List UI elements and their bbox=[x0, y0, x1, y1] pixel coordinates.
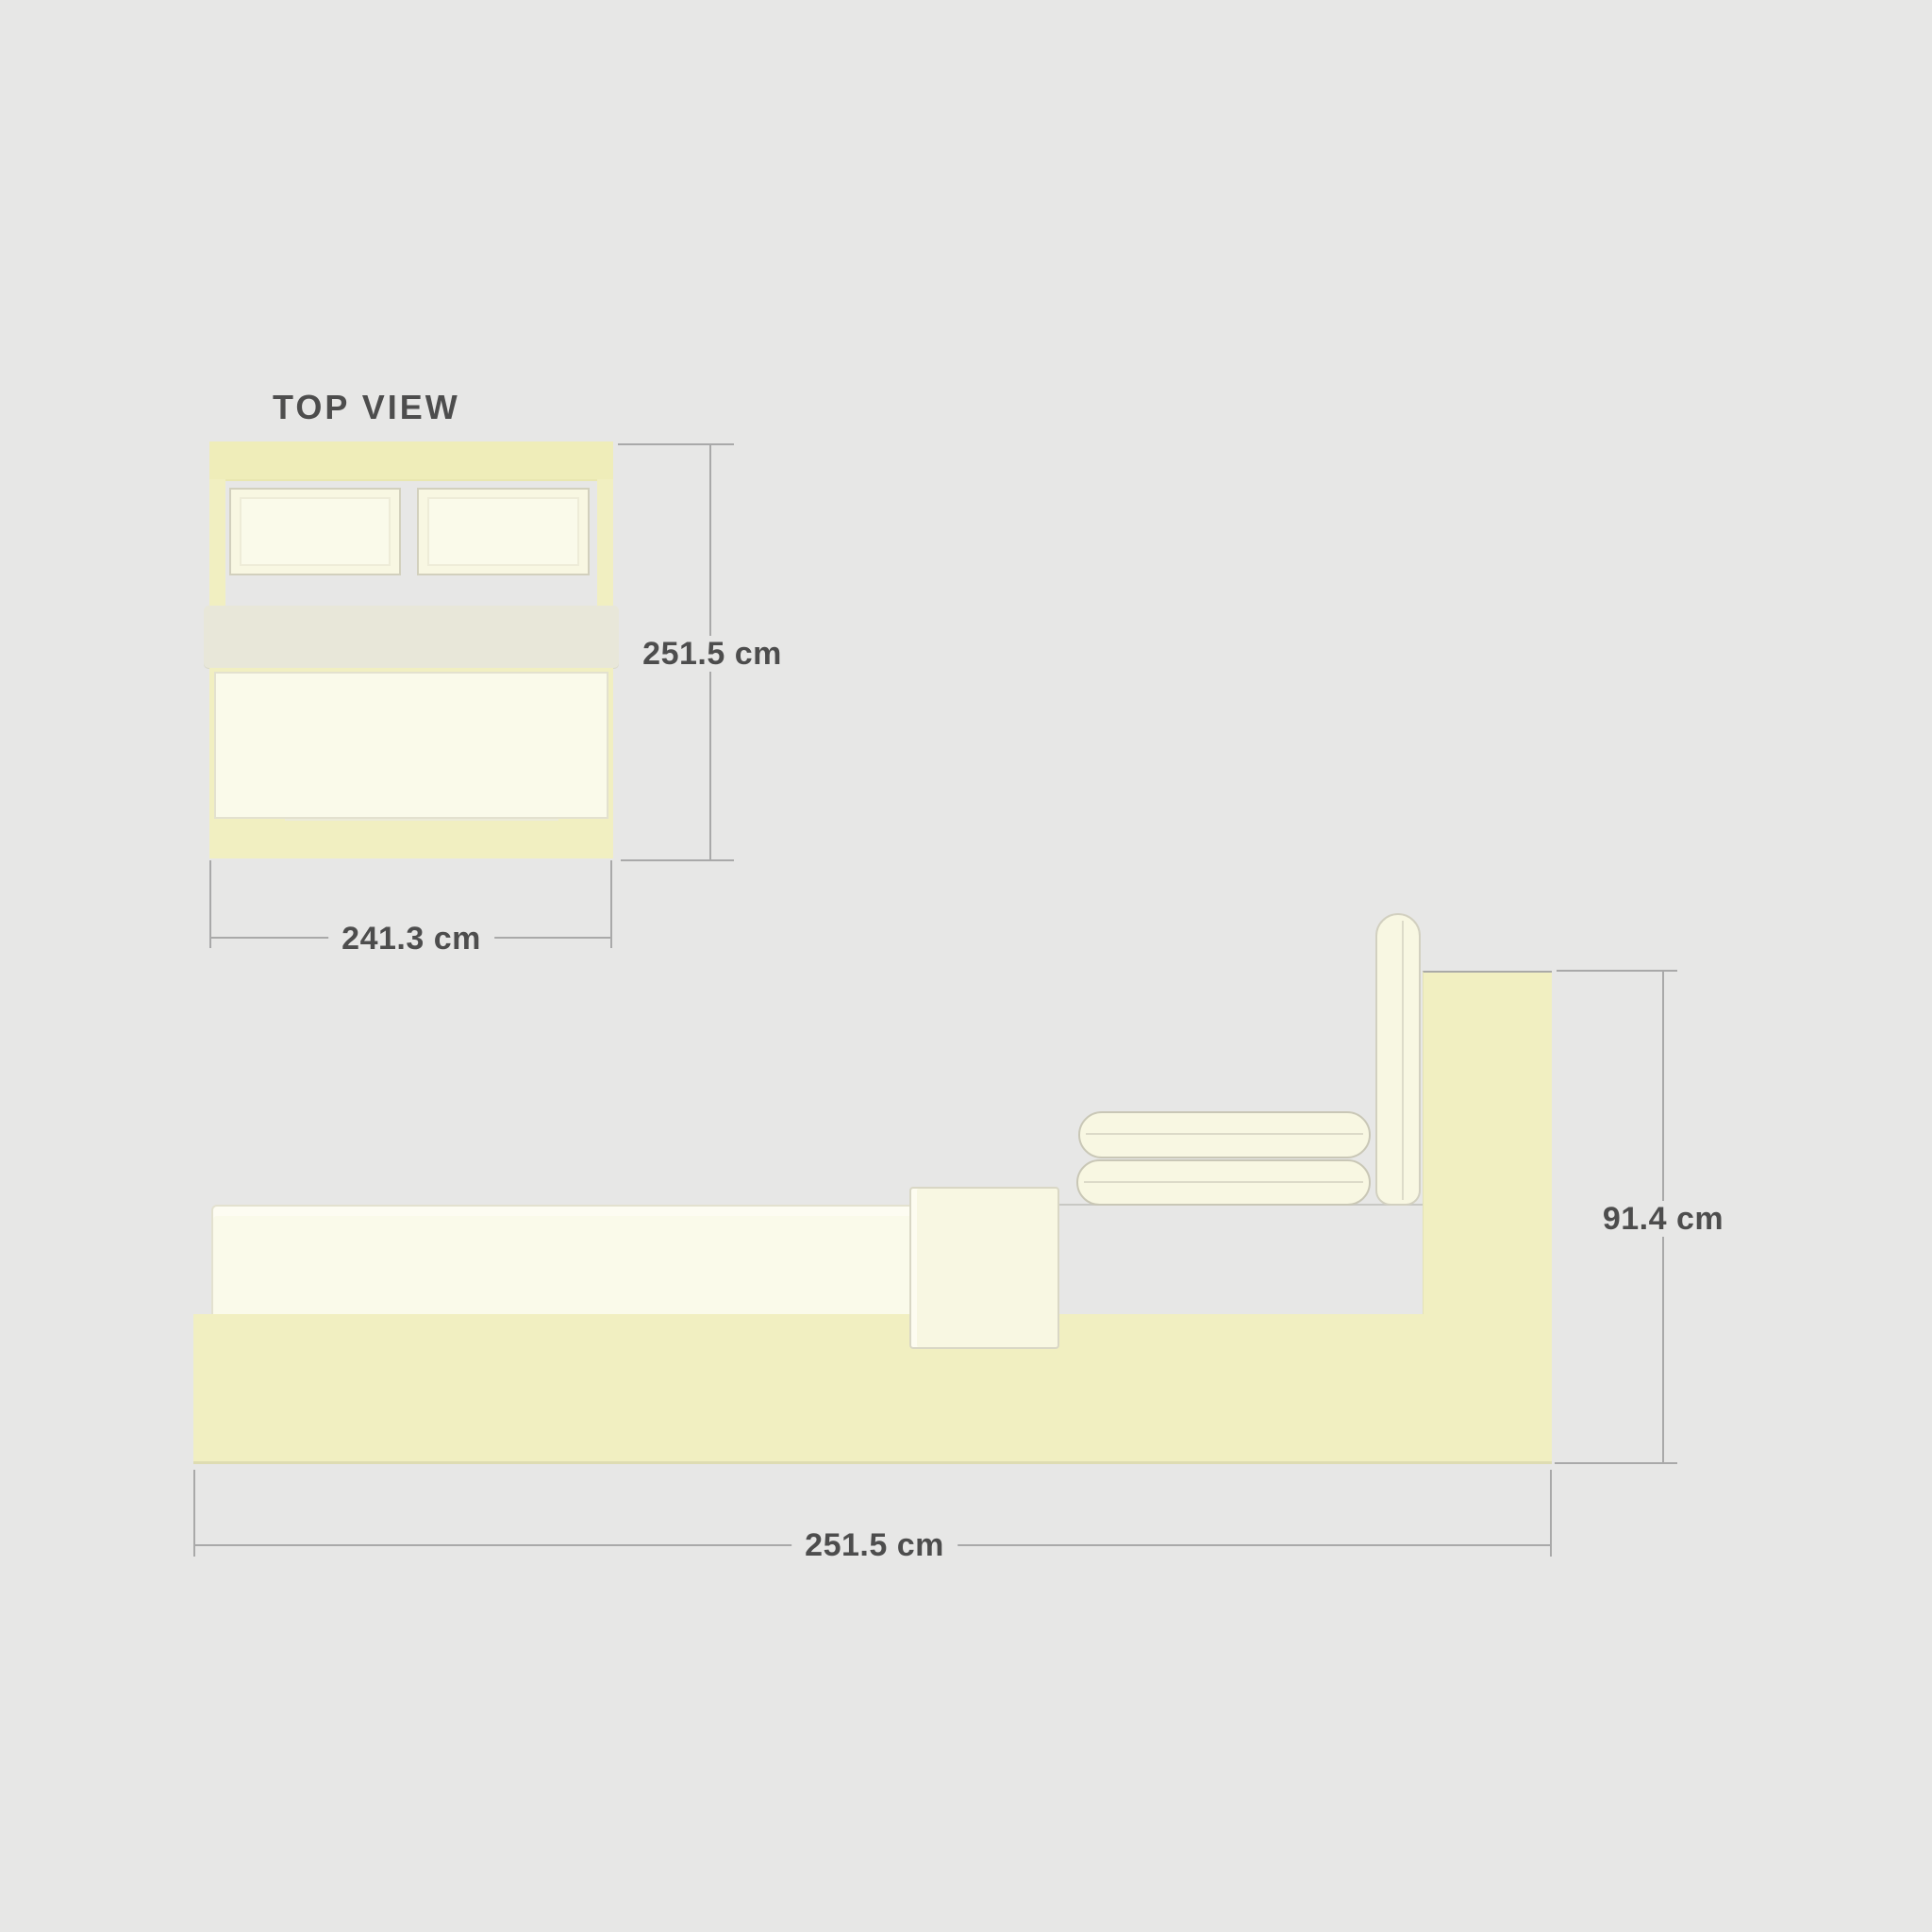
side-view-height-label: 91.4 cm bbox=[1590, 1201, 1737, 1237]
cushion-seam-line bbox=[1402, 921, 1404, 1200]
pillow-inner-seam bbox=[427, 497, 579, 566]
top-view-pillow-right bbox=[417, 488, 590, 575]
pillow-inner-seam bbox=[240, 497, 391, 566]
top-view-title: TOP VIEW bbox=[273, 391, 460, 425]
side-view-pillow-bottom bbox=[1076, 1159, 1371, 1206]
pillow-crease bbox=[1086, 1133, 1363, 1135]
top-view-duvet-fold-line bbox=[285, 819, 558, 821]
top-view-height-label: 251.5 cm bbox=[629, 636, 795, 672]
side-view-base-platform bbox=[193, 1314, 1552, 1464]
top-view-rail-right bbox=[597, 479, 613, 606]
top-view-headboard-strip bbox=[209, 441, 613, 481]
side-view-pillow-top bbox=[1078, 1111, 1371, 1158]
side-view-headboard-cushion bbox=[1375, 913, 1421, 1206]
dimension-extension-line bbox=[1555, 1462, 1677, 1464]
side-view-length-label: 251.5 cm bbox=[791, 1527, 958, 1563]
pillow-crease bbox=[1084, 1181, 1363, 1183]
side-view-blanket-overhang bbox=[909, 1187, 1059, 1349]
dimension-extension-line bbox=[209, 860, 211, 948]
top-view-blanket-band bbox=[204, 606, 619, 668]
bed-dimension-diagram: TOP VIEW 251.5 cm 241.3 cm bbox=[0, 0, 1932, 1932]
dimension-extension-line bbox=[618, 443, 734, 445]
top-view-rail-left bbox=[209, 479, 225, 606]
dimension-extension-line bbox=[1557, 970, 1677, 972]
top-view-duvet bbox=[214, 672, 608, 819]
dimension-extension-line bbox=[610, 860, 612, 948]
top-view-width-label: 241.3 cm bbox=[328, 921, 494, 957]
top-view-pillow-left bbox=[229, 488, 401, 575]
top-view-bed bbox=[209, 441, 613, 858]
dimension-extension-line bbox=[621, 859, 734, 861]
